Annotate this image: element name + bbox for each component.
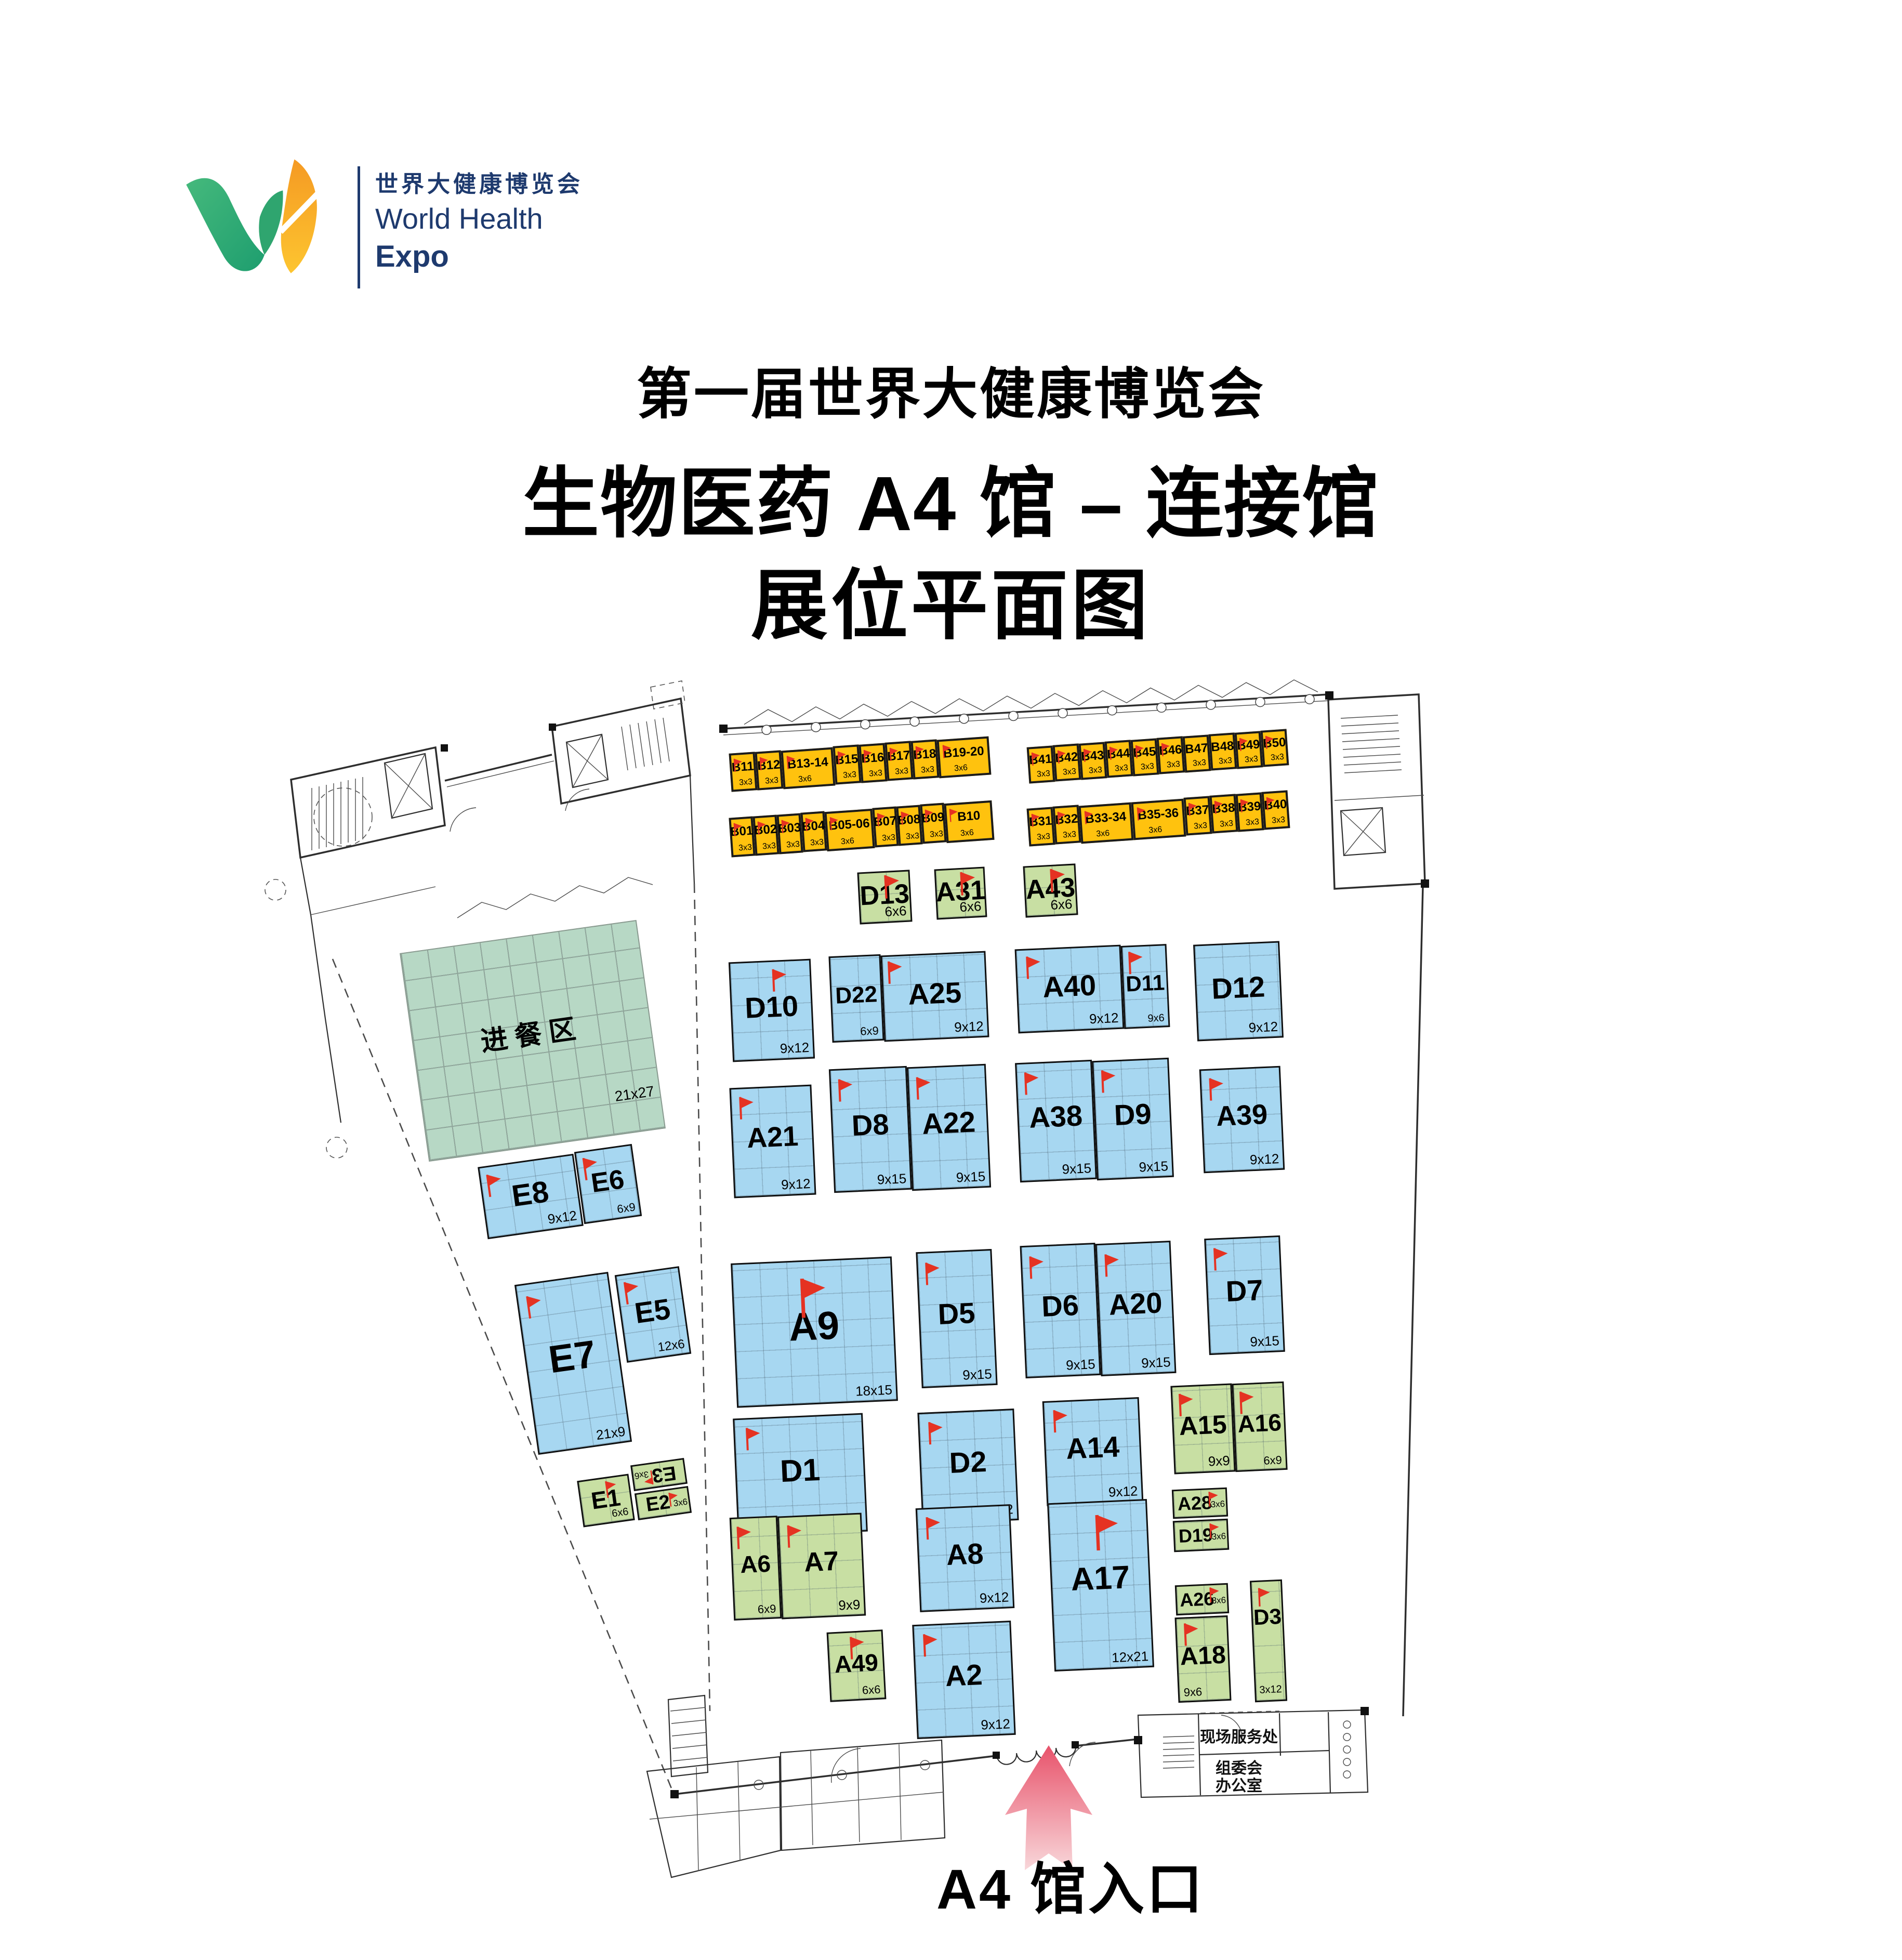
flag-icon: [1056, 749, 1067, 764]
flag-icon: [876, 812, 887, 827]
booth-A7: A79x9: [777, 1513, 866, 1620]
flag-icon: [1099, 1069, 1118, 1094]
booth-E8: E89x12: [478, 1154, 584, 1240]
booth-size: 3x3: [786, 840, 800, 850]
booth-B44: B443x3: [1105, 740, 1133, 778]
flag-icon: [642, 1470, 655, 1487]
booth-B50: B503x3: [1261, 729, 1289, 767]
booth-A28: A283x6: [1172, 1488, 1228, 1519]
booth-D22: D226x9: [828, 954, 884, 1043]
booth-size: 3x3: [738, 843, 752, 853]
flag-icon: [780, 819, 791, 834]
booth-size: 18x15: [855, 1382, 893, 1400]
booth-size: 6x9: [757, 1602, 776, 1616]
booth-size: 9x15: [1066, 1356, 1096, 1373]
booth-label: A21: [746, 1120, 799, 1154]
booth-size: 3x3: [1062, 767, 1076, 778]
booth-size: 9x15: [1062, 1160, 1092, 1177]
booth-label: E7: [546, 1332, 598, 1382]
booth-B35-36: B35-363x6: [1131, 799, 1186, 840]
flag-icon: [1135, 806, 1147, 821]
flag-icon: [888, 746, 900, 761]
flag-icon: [770, 967, 788, 993]
flag-icon: [734, 1524, 753, 1550]
flag-icon: [1208, 1522, 1221, 1540]
booth-size: 3x3: [843, 770, 857, 781]
booth-E2: E23x6: [635, 1486, 692, 1520]
booth-label: D22: [835, 981, 878, 1009]
booth-B05-06: B05-063x6: [824, 809, 875, 851]
booth-size: 6x6: [884, 903, 907, 920]
booth-A38: A389x15: [1015, 1060, 1097, 1182]
booth-size: 3x6: [798, 774, 812, 785]
flag-icon: [785, 755, 797, 770]
booth-size: 6x9: [1263, 1453, 1283, 1468]
booth-B15: B153x3: [833, 744, 861, 784]
flag-icon: [484, 1171, 505, 1198]
booth-B40: B403x3: [1262, 790, 1290, 830]
booth-A18: A189x6: [1174, 1615, 1231, 1703]
booth-D6: D69x15: [1020, 1243, 1101, 1378]
booth-A26: A263x6: [1175, 1583, 1229, 1615]
flag-icon: [732, 757, 744, 772]
flag-icon: [1238, 736, 1249, 752]
booth-size: 9x12: [954, 1018, 984, 1035]
flag-icon: [1213, 799, 1224, 814]
booth-size: 3x3: [1246, 818, 1260, 828]
booth-B19-20: B19-203x6: [937, 736, 992, 779]
flag-icon: [785, 1523, 803, 1548]
booth-size: 6x6: [959, 898, 982, 915]
booth-A21: A219x12: [729, 1085, 816, 1199]
flag-icon: [804, 817, 815, 832]
booth-label: D10: [744, 989, 799, 1024]
booth-size: 9x6: [1183, 1685, 1203, 1700]
booth-label: A7: [803, 1546, 839, 1578]
booth-size: 9x12: [781, 1176, 811, 1193]
flag-icon: [758, 756, 770, 771]
booth-B13-14: B13-143x6: [781, 747, 836, 790]
booth-size: 3x3: [882, 833, 896, 844]
booth-B08: B083x3: [896, 805, 922, 846]
booth-A22: A229x15: [907, 1064, 991, 1191]
flag-icon: [926, 1420, 945, 1445]
booth-B38: B383x3: [1210, 794, 1238, 833]
booth-size: 9x6: [1147, 1012, 1165, 1024]
flag-icon: [1160, 742, 1171, 757]
booth-B31: B313x3: [1027, 807, 1055, 846]
booth-B01: B013x3: [729, 816, 755, 857]
booth-size: 3x3: [1088, 766, 1102, 776]
booth-B11: B113x3: [729, 752, 757, 792]
flag-icon: [862, 748, 874, 764]
flag-icon: [580, 1154, 601, 1181]
flag-icon: [1030, 812, 1041, 827]
booth-size: 3x3: [1166, 760, 1180, 770]
booth-B18: B183x3: [910, 739, 939, 779]
booth-D3: D33x12: [1250, 1580, 1287, 1702]
booth-B09: B093x3: [920, 803, 946, 844]
booth-label: D2: [948, 1444, 987, 1480]
booth-label: D6: [1041, 1288, 1079, 1323]
booth-B49: B493x3: [1235, 731, 1263, 769]
flag-icon: [744, 1426, 762, 1451]
flag-icon: [1030, 751, 1041, 766]
booth-label: D3: [1253, 1604, 1282, 1630]
flag-icon: [1211, 1246, 1230, 1271]
booth-label: D12: [1211, 969, 1265, 1005]
booth-size: 3x3: [1270, 753, 1284, 763]
booth-size: 3x3: [869, 769, 883, 779]
booth-size: 3x3: [1272, 815, 1286, 826]
booth-label: A25: [907, 975, 962, 1011]
booth-A17: A1712x21: [1047, 1499, 1154, 1672]
booth-B42: B423x3: [1053, 743, 1081, 781]
booth-size: 3x3: [762, 841, 776, 852]
booth-A49: A496x6: [827, 1629, 887, 1702]
booth-D7: D79x15: [1204, 1235, 1285, 1355]
booth-size: 12x6: [657, 1337, 685, 1355]
flag-icon: [1047, 866, 1067, 893]
flag-icon: [1027, 1254, 1046, 1280]
booth-B04: B043x3: [800, 811, 827, 852]
booth-B02: B023x3: [752, 814, 779, 856]
booth-size: 9x12: [1248, 1019, 1278, 1036]
booth-B03: B033x3: [776, 813, 803, 854]
booth-size: 9x15: [877, 1170, 907, 1188]
flag-icon: [900, 810, 911, 825]
booth-B16: B163x3: [858, 743, 887, 783]
booth-size: 3x3: [906, 832, 920, 842]
flag-icon: [1082, 747, 1093, 762]
booth-D9: D99x15: [1092, 1058, 1174, 1180]
booth-size: 3x3: [1037, 832, 1051, 843]
flag-icon: [1264, 734, 1275, 749]
booth-size: 9x15: [1250, 1333, 1280, 1350]
booth-D10: D109x12: [729, 959, 815, 1062]
booth-label: A22: [921, 1104, 976, 1140]
flag-icon: [1102, 1252, 1121, 1278]
booth-size: 9x12: [979, 1589, 1009, 1606]
booth-size: 12x21: [1112, 1648, 1149, 1666]
booth-E7: E721x9: [514, 1272, 632, 1455]
booth-B07: B073x3: [872, 806, 899, 847]
flag-icon: [1177, 1392, 1195, 1417]
booth-B37: B373x3: [1184, 796, 1212, 835]
booth-size: 3x3: [765, 776, 779, 786]
booth-size: 3x3: [1063, 830, 1077, 840]
booth-size: 6x9: [860, 1024, 879, 1038]
booth-B47: B473x3: [1183, 734, 1211, 772]
flag-icon: [1207, 1490, 1220, 1507]
booth-size: 6x6: [1050, 896, 1073, 913]
booth-A39: A399x12: [1199, 1066, 1285, 1174]
booth-label: D7: [1225, 1273, 1263, 1308]
booth-A6: A66x9: [730, 1516, 782, 1621]
booth-size: 3x3: [739, 778, 753, 788]
booth-A8: A89x12: [916, 1504, 1015, 1612]
booth-size: 3x12: [1259, 1683, 1282, 1696]
booth-label: A39: [1216, 1098, 1269, 1133]
booth-size: 9x12: [981, 1716, 1011, 1733]
flag-icon: [1187, 801, 1198, 817]
booth-label: B48: [1210, 739, 1234, 755]
booth-A20: A209x15: [1095, 1241, 1177, 1376]
flag-icon: [603, 1479, 619, 1499]
flag-icon: [1126, 950, 1144, 975]
flag-icon: [1239, 798, 1250, 813]
flag-icon: [1092, 1511, 1121, 1552]
booths-layer: B113x3B123x3B13-143x6B153x3B163x3B173x3B…: [0, 0, 1902, 1960]
flag-icon: [1108, 745, 1119, 760]
booth-A31: A316x6: [934, 867, 987, 920]
flag-icon: [886, 959, 904, 985]
booth-size: 9x15: [956, 1168, 986, 1186]
booth-B39: B393x3: [1236, 792, 1264, 832]
booth-size: 9x9: [1208, 1453, 1230, 1470]
flag-icon: [881, 873, 902, 900]
flag-icon: [1024, 955, 1042, 980]
flag-icon: [948, 808, 959, 823]
booth-label: B10: [957, 809, 981, 825]
flag-icon: [1134, 744, 1145, 759]
booth-size: 3x3: [1244, 755, 1258, 765]
booth-size: 6x6: [862, 1683, 881, 1698]
booth-size: 3x3: [921, 765, 935, 775]
booth-size: 9x15: [962, 1366, 993, 1383]
flag-icon: [1051, 1408, 1069, 1433]
flag-icon: [941, 744, 953, 759]
booth-A25: A259x12: [880, 951, 989, 1042]
booth-B43: B433x3: [1079, 742, 1107, 780]
booth-label: A14: [1065, 1429, 1120, 1465]
booth-size: 3x6: [1148, 825, 1163, 836]
flag-icon: [1207, 1076, 1225, 1101]
flag-icon: [1237, 1389, 1256, 1415]
booth-B41: B413x3: [1027, 745, 1055, 783]
booth-label: D1: [780, 1452, 821, 1489]
booth-size: 9x12: [1108, 1483, 1138, 1500]
booth-size: 3x3: [1220, 819, 1234, 830]
booth-D19: D193x6: [1173, 1519, 1230, 1553]
booth-size: 3x3: [895, 767, 909, 777]
flag-icon: [1056, 810, 1067, 825]
flag-icon: [1181, 1622, 1200, 1647]
flag-icon: [1207, 1586, 1220, 1603]
booth-size: 3x3: [1114, 764, 1128, 774]
booth-A43: A436x6: [1023, 863, 1078, 917]
booth-E5: E512x6: [615, 1266, 691, 1363]
booth-size: 9x12: [1089, 1010, 1119, 1027]
booth-label: D9: [1113, 1097, 1152, 1132]
booth-A16: A166x9: [1232, 1382, 1287, 1472]
flag-icon: [914, 1075, 933, 1100]
flag-icon: [923, 1261, 942, 1286]
booth-B32: B323x3: [1053, 805, 1081, 844]
booth-size: 3x3: [1192, 758, 1206, 769]
flag-icon: [924, 1515, 943, 1541]
flag-icon: [622, 1279, 642, 1306]
booth-D8: D89x15: [829, 1066, 912, 1193]
booth-B48: B483x3: [1209, 732, 1237, 770]
booth-label: A38: [1028, 1098, 1083, 1134]
booth-label: A40: [1042, 968, 1097, 1004]
booth-A14: A149x12: [1042, 1397, 1144, 1506]
flag-icon: [958, 870, 978, 897]
booth-size: 3x6: [1096, 829, 1110, 839]
booth-label: A20: [1108, 1285, 1163, 1321]
booth-A2: A29x12: [912, 1621, 1015, 1739]
booth-size: 9x12: [547, 1207, 578, 1228]
booth-D5: D59x15: [916, 1249, 997, 1388]
booth-B17: B173x3: [884, 741, 913, 781]
booth-label: D5: [937, 1296, 975, 1331]
booth-size: 9x15: [1141, 1354, 1171, 1371]
flag-icon: [732, 822, 744, 837]
booth-E1: E16x6: [577, 1474, 635, 1527]
flag-icon: [1083, 810, 1094, 825]
flag-icon: [914, 745, 926, 760]
booth-D13: D136x6: [857, 870, 912, 924]
flag-icon: [836, 1077, 855, 1102]
booth-label: A8: [945, 1536, 984, 1572]
flag-icon: [921, 1632, 940, 1658]
booth-A40: A409x12: [1015, 945, 1125, 1034]
booth-B46: B463x3: [1157, 736, 1185, 774]
booth-size: 3x6: [840, 836, 854, 847]
flag-icon: [1265, 796, 1276, 811]
booth-size: 9x12: [780, 1040, 810, 1057]
booth-B10: B103x6: [944, 800, 994, 843]
booth-size: 3x3: [1218, 756, 1232, 767]
booth-label: A17: [1070, 1559, 1131, 1598]
booth-size: 9x12: [1249, 1151, 1279, 1168]
booth-size: 3x3: [1036, 769, 1050, 780]
flag-icon: [1256, 1586, 1272, 1608]
booth-size: 3x6: [954, 764, 968, 774]
booth-size: 3x3: [930, 830, 944, 840]
booth-E6: E66x9: [574, 1144, 642, 1224]
flag-icon: [923, 808, 935, 823]
booth-size: 9x9: [838, 1597, 861, 1614]
flag-icon: [796, 1275, 829, 1320]
booth-B12: B123x3: [755, 750, 783, 790]
flag-icon: [828, 816, 840, 831]
booth-D11: D119x6: [1121, 944, 1170, 1029]
booth-A15: A159x9: [1170, 1384, 1235, 1475]
booth-size: 3x3: [1140, 762, 1154, 772]
flag-icon: [667, 1491, 680, 1508]
booth-size: 3x6: [960, 828, 974, 838]
booth-B33-34: B33-343x6: [1079, 803, 1134, 844]
flag-icon: [1022, 1071, 1041, 1096]
booth-size: 6x9: [616, 1200, 637, 1216]
booth-label: A2: [944, 1658, 983, 1693]
flag-icon: [756, 820, 768, 835]
booth-label: A6: [739, 1549, 771, 1579]
booth-label: E8: [509, 1174, 551, 1214]
flag-icon: [836, 750, 848, 765]
booth-size: 9x15: [1139, 1158, 1169, 1175]
booth-B45: B453x3: [1131, 738, 1159, 776]
flag-icon: [737, 1095, 756, 1121]
booth-D12: D129x12: [1193, 941, 1284, 1041]
booth-E3: E33x6: [630, 1458, 688, 1491]
booth-size: 6x6: [611, 1506, 629, 1520]
booth-size: 3x3: [810, 838, 824, 848]
flag-icon: [524, 1293, 545, 1320]
booth-size: 3x3: [1194, 821, 1208, 832]
flag-icon: [848, 1635, 866, 1661]
booth-A9: A918x15: [731, 1256, 898, 1407]
booth-size: 21x9: [595, 1423, 626, 1443]
booth-label: B47: [1184, 741, 1208, 757]
booth-label: D8: [851, 1107, 889, 1142]
